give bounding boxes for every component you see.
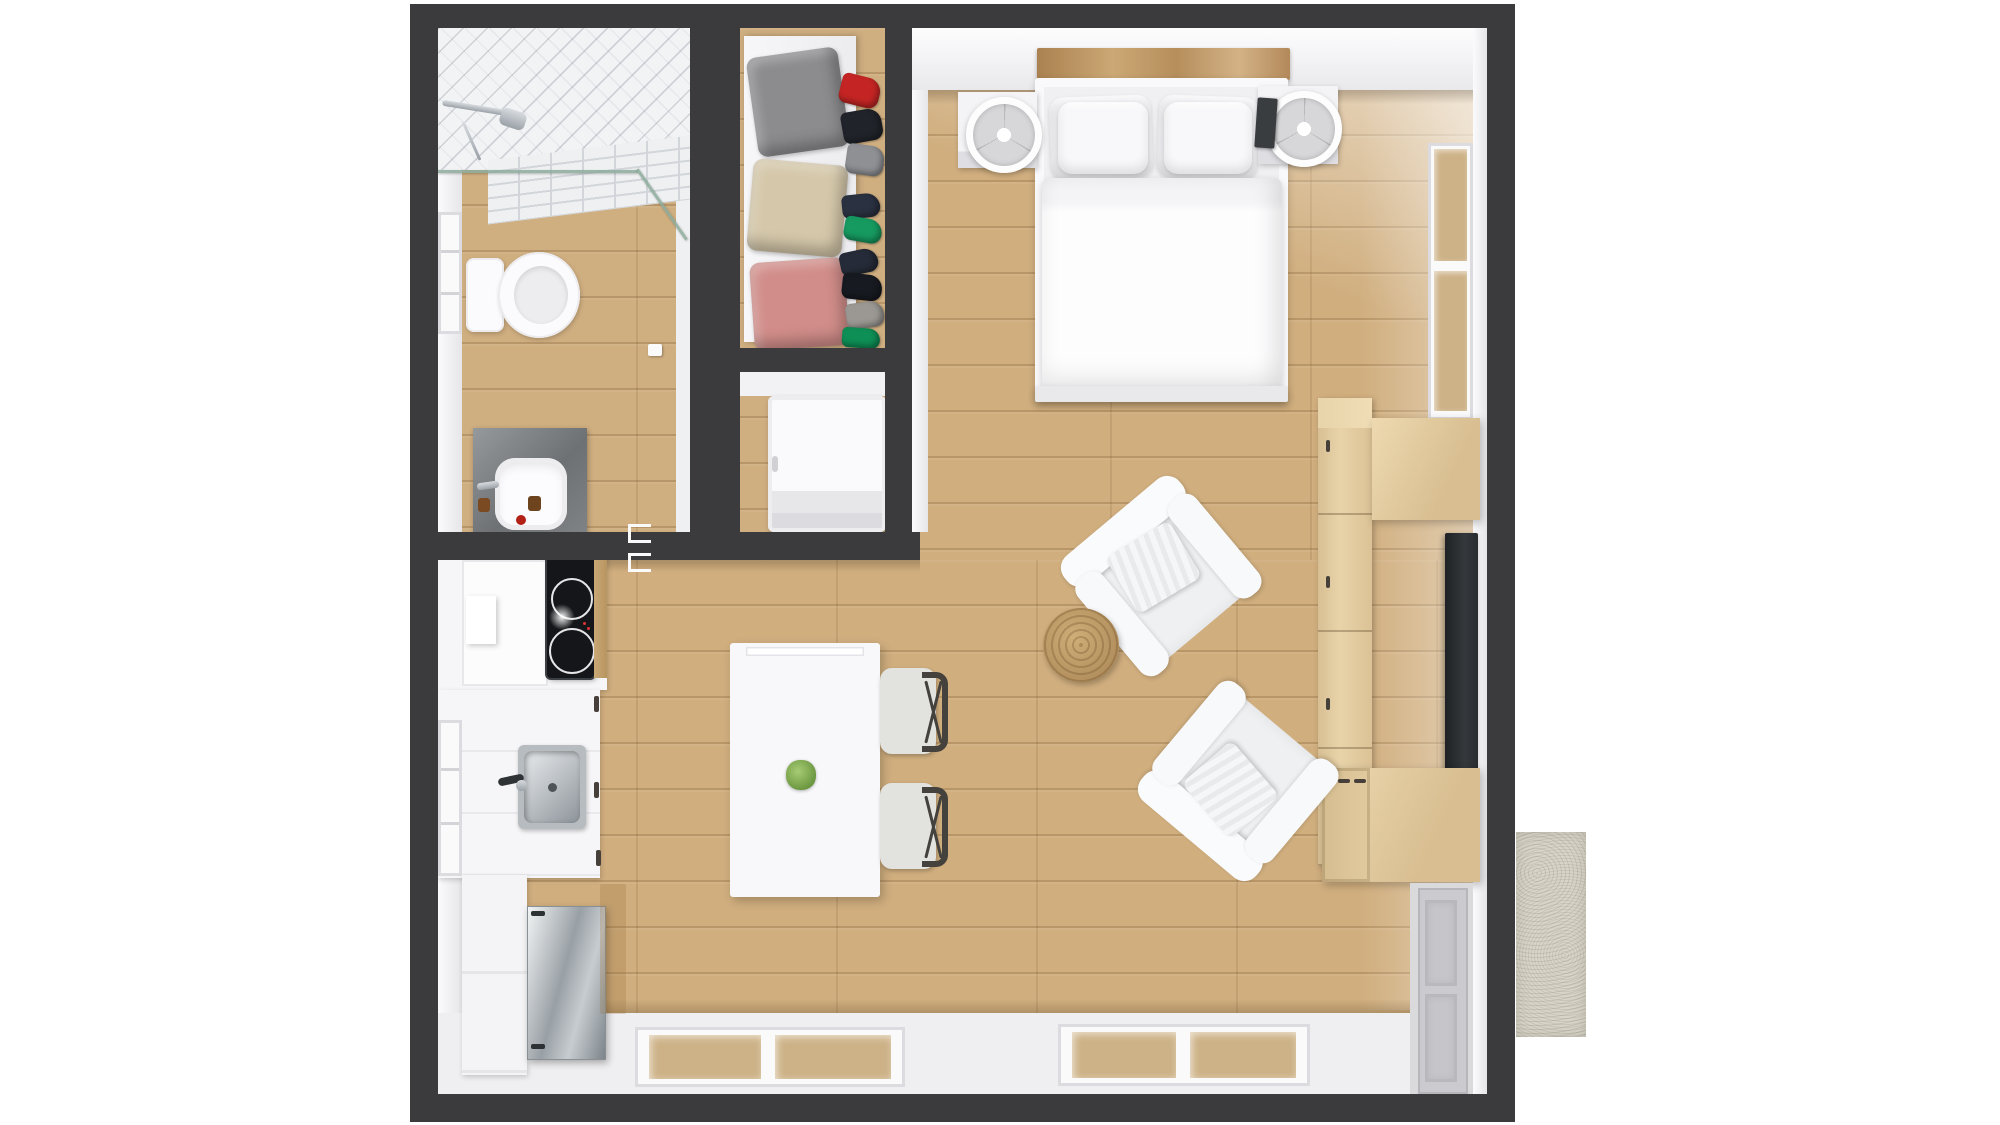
bathroom-window [438, 212, 462, 334]
window-muntin [441, 822, 459, 825]
dining-chair-1 [880, 666, 950, 758]
door-panel [1425, 994, 1457, 1082]
window-pane [649, 1035, 761, 1079]
shower-glass-screen [438, 170, 638, 173]
glass-splash-panel [600, 884, 626, 1014]
wall-bottom [410, 1094, 1515, 1122]
media-upper-box [1372, 418, 1480, 520]
pillow-left [1058, 102, 1148, 174]
floor-plan-render [0, 0, 2000, 1125]
bathroom-right-wall-face [676, 160, 690, 532]
washing-machine [768, 396, 886, 532]
closet-wall-face [912, 90, 928, 532]
drawer-handle [594, 782, 599, 798]
window-pane [1190, 1032, 1296, 1078]
wall-closet-bedroom [885, 28, 912, 532]
toilet-seat [514, 266, 568, 324]
window-pane [1434, 271, 1467, 411]
cooktop-indicator [583, 622, 586, 625]
window-muntin [441, 768, 459, 771]
table-edge [746, 647, 864, 656]
window-pane [1072, 1032, 1176, 1078]
kitchen-tall-cabinet [462, 875, 527, 1075]
toilet-paper-holder [648, 344, 662, 356]
laundry-nook-sill [740, 372, 885, 396]
bottom-window-left [635, 1027, 905, 1087]
sink-drain [548, 783, 557, 792]
door-panel [1425, 900, 1457, 986]
clothes-item-green-2 [841, 327, 880, 350]
cabinet-handle [1326, 698, 1330, 710]
kitchen-window [438, 720, 462, 876]
window-muntin [441, 292, 459, 295]
wall-right [1487, 4, 1515, 1122]
media-cabinet-top [1318, 398, 1372, 428]
bottom-window-right [1058, 1024, 1310, 1086]
window-pane [1434, 149, 1467, 261]
door-hinge-mark [628, 524, 651, 543]
lamp-left [966, 97, 1042, 173]
washer-handle [772, 456, 778, 472]
cabinet-handle [1326, 440, 1330, 452]
headboard-shelf [1037, 48, 1290, 80]
bedside-frame-item [1254, 97, 1277, 148]
bed-footboard [1035, 386, 1288, 402]
folded-sweater-gray [745, 46, 850, 158]
door-hinge-mark [628, 553, 651, 572]
folded-sweater-beige [746, 158, 849, 258]
table-plant [786, 760, 816, 790]
counter-item [466, 596, 496, 644]
entrance-door [1418, 888, 1468, 1094]
window-muntin [441, 250, 459, 253]
oven-handle [531, 911, 545, 916]
pillow-right [1164, 102, 1252, 174]
cooktop-indicator [587, 627, 590, 630]
dining-chair-2 [880, 781, 950, 873]
oven-dishwasher [527, 906, 606, 1060]
counter-wood-edge [594, 556, 607, 678]
vessel-sink [495, 458, 567, 530]
red-accessory [516, 515, 526, 525]
burner-back [549, 628, 595, 674]
faucet-base [516, 780, 527, 791]
window-pane [775, 1035, 891, 1079]
wall-bath-closet [690, 28, 740, 532]
cooktop-glare [549, 604, 575, 630]
drawer-handle [596, 850, 601, 866]
oven-handle [531, 1044, 545, 1049]
soap-bottle-2 [528, 496, 541, 511]
folded-sweater-rose [749, 257, 850, 351]
drawer-handle [594, 696, 599, 712]
wall-bath-divider [438, 532, 920, 560]
wall-closet-nook [740, 348, 885, 372]
wall-left [410, 4, 438, 1122]
cabinet-handle [1326, 576, 1330, 588]
tv [1445, 533, 1478, 770]
bedroom-window [1428, 143, 1473, 420]
duvet [1042, 178, 1282, 390]
jute-pouf [1043, 608, 1119, 682]
console-handle [1354, 779, 1366, 783]
wall-top [410, 4, 1515, 28]
soap-bottle [478, 498, 490, 512]
cooktop [547, 556, 594, 678]
console-handle [1338, 779, 1350, 783]
doormat [1516, 832, 1586, 1037]
